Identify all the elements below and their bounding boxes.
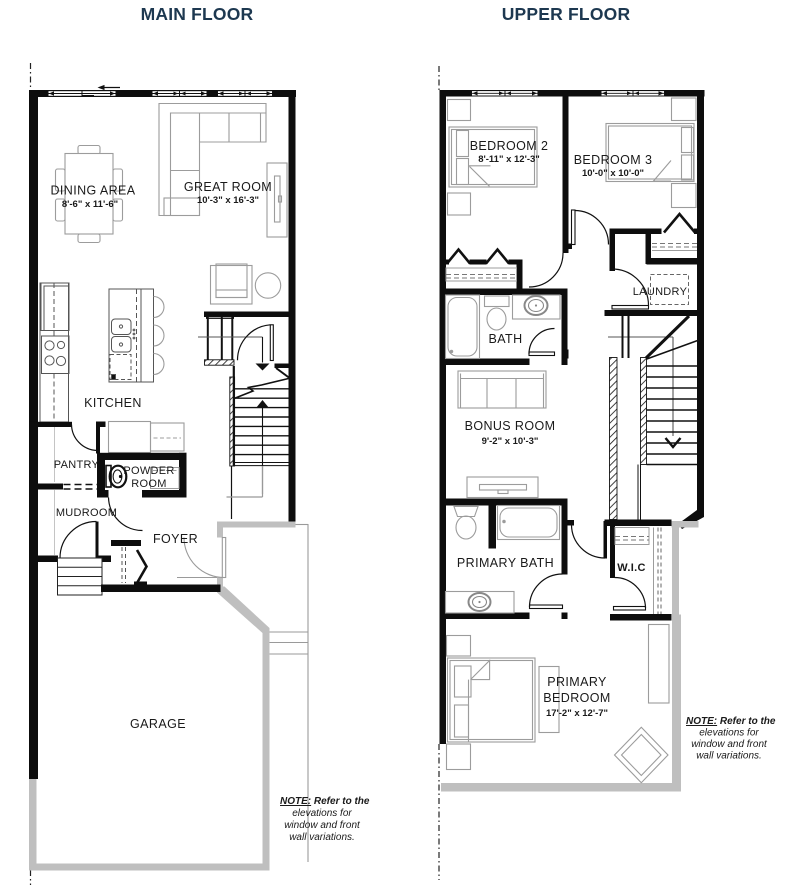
svg-text:BEDROOM: BEDROOM: [543, 691, 610, 705]
svg-text:BEDROOM 3: BEDROOM 3: [574, 153, 653, 167]
svg-text:NOTE: Refer to the: NOTE: Refer to the: [280, 796, 370, 807]
svg-text:window and front: window and front: [691, 739, 768, 750]
svg-text:9'-2" x 10'-3": 9'-2" x 10'-3": [482, 436, 539, 447]
svg-text:elevations for: elevations for: [292, 808, 352, 819]
svg-text:LAUNDRY: LAUNDRY: [633, 286, 688, 298]
svg-text:UPPER FLOOR: UPPER FLOOR: [502, 4, 631, 24]
svg-text:ROOM: ROOM: [131, 478, 166, 490]
svg-text:wall variations.: wall variations.: [696, 751, 762, 762]
svg-text:8'-6" x 11'-6": 8'-6" x 11'-6": [62, 199, 118, 210]
svg-text:elevations for: elevations for: [699, 728, 759, 739]
svg-text:DINING AREA: DINING AREA: [51, 184, 136, 198]
svg-text:17'-2" x 12'-7": 17'-2" x 12'-7": [546, 708, 608, 719]
svg-text:BONUS ROOM: BONUS ROOM: [465, 419, 556, 433]
svg-text:GREAT ROOM: GREAT ROOM: [184, 180, 272, 194]
svg-text:GARAGE: GARAGE: [130, 717, 186, 731]
svg-text:PANTRY: PANTRY: [54, 459, 100, 471]
svg-text:BEDROOM 2: BEDROOM 2: [470, 139, 549, 153]
svg-text:MUDROOM: MUDROOM: [56, 507, 117, 519]
svg-text:wall variations.: wall variations.: [289, 832, 355, 843]
svg-text:8'-11" x 12'-3": 8'-11" x 12'-3": [478, 154, 540, 165]
svg-text:PRIMARY BATH: PRIMARY BATH: [457, 556, 554, 570]
svg-text:10'-3" x 16'-3": 10'-3" x 16'-3": [197, 195, 259, 206]
svg-text:W.I.C: W.I.C: [617, 562, 645, 574]
svg-text:10'-0" x 10'-0": 10'-0" x 10'-0": [582, 168, 644, 179]
svg-text:KITCHEN: KITCHEN: [84, 396, 142, 410]
svg-text:NOTE: Refer to the: NOTE: Refer to the: [686, 716, 776, 727]
svg-text:FOYER: FOYER: [153, 532, 198, 546]
svg-text:BATH: BATH: [488, 332, 522, 346]
svg-text:MAIN FLOOR: MAIN FLOOR: [141, 4, 254, 24]
svg-text:PRIMARY: PRIMARY: [547, 675, 607, 689]
svg-text:POWDER: POWDER: [123, 465, 174, 477]
svg-text:window and front: window and front: [284, 820, 361, 831]
